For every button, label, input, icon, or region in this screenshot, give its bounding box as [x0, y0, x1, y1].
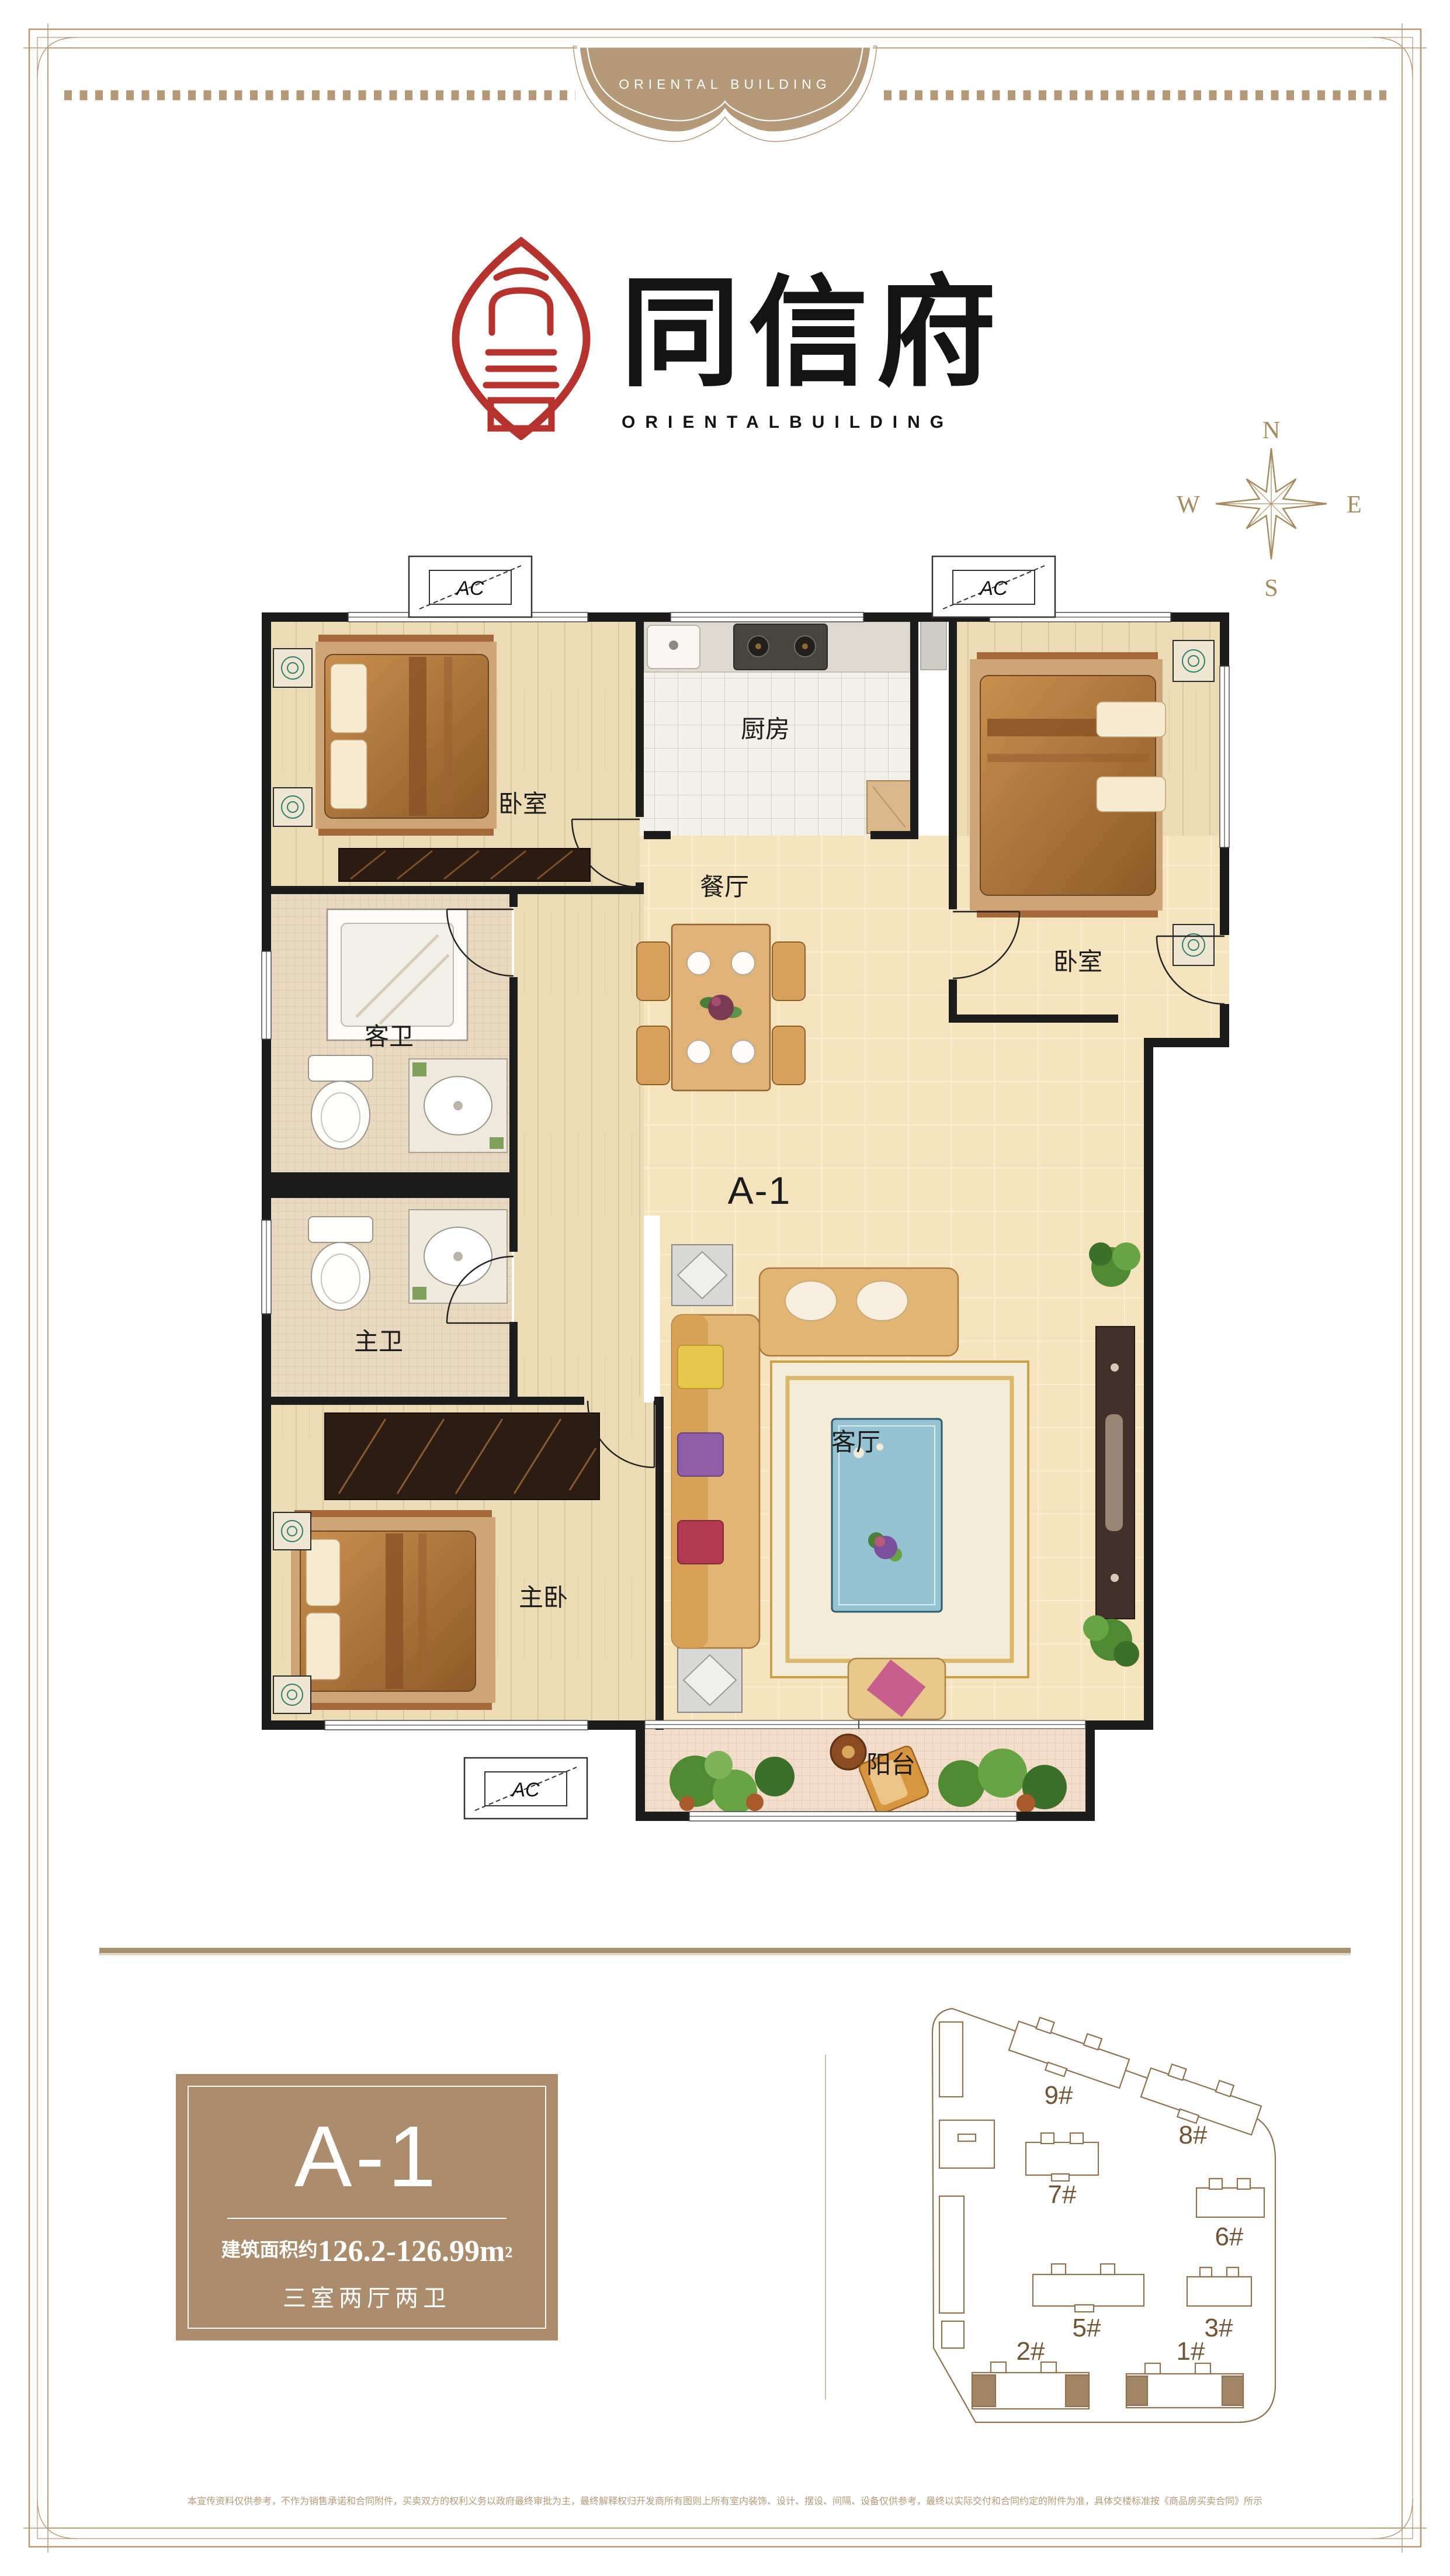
site-building-label: 2#: [1017, 2337, 1045, 2366]
site-building-2: [972, 2362, 1089, 2409]
site-plan: 9# 8# 7# 6# 5# 3# 2# 1#: [932, 2009, 1275, 2422]
room-label-guest-bath: 客卫: [365, 1023, 414, 1050]
room-label-bedroom1: 卧室: [498, 790, 547, 818]
section-divider-shadow: [99, 1953, 1351, 1955]
floor-plan: AC AC AC 卧室 厨房 卧室 餐厅 客卫 主卫 主卧 客: [262, 556, 1229, 1821]
compass-n: N: [1262, 417, 1280, 444]
ac-label: AC: [455, 577, 484, 600]
room-label-balcony: 阳台: [866, 1751, 915, 1778]
section-divider: [99, 1948, 1351, 1953]
site-building-label: 8#: [1179, 2121, 1208, 2149]
ac-unit-icon: AC: [409, 556, 532, 617]
compass-s: S: [1264, 575, 1278, 602]
site-building-3: [1187, 2267, 1251, 2306]
ac-label: AC: [979, 577, 1008, 600]
room-label-dining: 餐厅: [700, 873, 749, 901]
unit-info-box: A-1 建筑面积约126.2-126.99m2 三室两厅两卫: [176, 2074, 558, 2340]
site-building-7: [1026, 2133, 1098, 2181]
ac-unit-icon: AC: [932, 556, 1055, 617]
site-building-1: [1126, 2363, 1243, 2408]
room-label-bedroom2: 卧室: [1053, 948, 1102, 975]
plan-unit-label: A-1: [728, 1169, 792, 1212]
room-label-master-bedroom: 主卧: [519, 1584, 568, 1611]
logo-title-cn: 同信府: [620, 263, 1004, 404]
site-building-label: 9#: [1045, 2081, 1073, 2110]
compass-icon: [1216, 448, 1327, 559]
site-building-labels: 9# 8# 7# 6# 5# 3# 2# 1#: [1017, 2081, 1244, 2366]
site-building-6: [1196, 2179, 1264, 2217]
unit-area-prefix: 建筑面积约: [221, 2239, 318, 2260]
unit-area-value: 126.2-126.99m: [318, 2235, 505, 2268]
vertical-separator: [825, 2055, 826, 2400]
compass-labels: N E S W: [1177, 417, 1362, 602]
site-building-5: [1033, 2264, 1144, 2312]
compass-e: E: [1347, 491, 1362, 518]
unit-area: 建筑面积约126.2-126.99m2: [189, 2234, 545, 2269]
site-building-label: 6#: [1215, 2222, 1244, 2251]
room-label-living: 客厅: [831, 1428, 880, 1456]
site-building-label: 7#: [1048, 2180, 1077, 2209]
unit-area-sup: 2: [505, 2244, 512, 2261]
poster-page: N E S W: [0, 0, 1450, 2576]
site-building-label: 5#: [1073, 2314, 1101, 2342]
top-banner: [573, 46, 877, 141]
ac-label: AC: [511, 1779, 540, 1801]
ac-unit-icon: AC: [464, 1758, 587, 1819]
site-building-label: 3#: [1205, 2314, 1233, 2342]
room-label-master-bath: 主卫: [354, 1328, 403, 1355]
banner-title: ORIENTAL BUILDING: [564, 77, 886, 92]
disclaimer-text: 本宣传资料仅供参考，不作为销售承诺和合同附件，买卖双方的权利义务以政府最终审批为…: [188, 2493, 1262, 2507]
unit-layout: 三室两厅两卫: [189, 2279, 545, 2313]
unit-info-border: A-1 建筑面积约126.2-126.99m2 三室两厅两卫: [188, 2086, 546, 2329]
logo-seal-icon: [451, 237, 591, 440]
unit-code: A-1: [189, 2114, 545, 2200]
room-label-kitchen: 厨房: [741, 715, 790, 743]
site-building-label: 1#: [1177, 2337, 1205, 2366]
unit-info-rule: [227, 2218, 507, 2219]
compass-w: W: [1177, 491, 1200, 518]
logo-title-en: ORIENTALBUILDING: [622, 413, 953, 432]
